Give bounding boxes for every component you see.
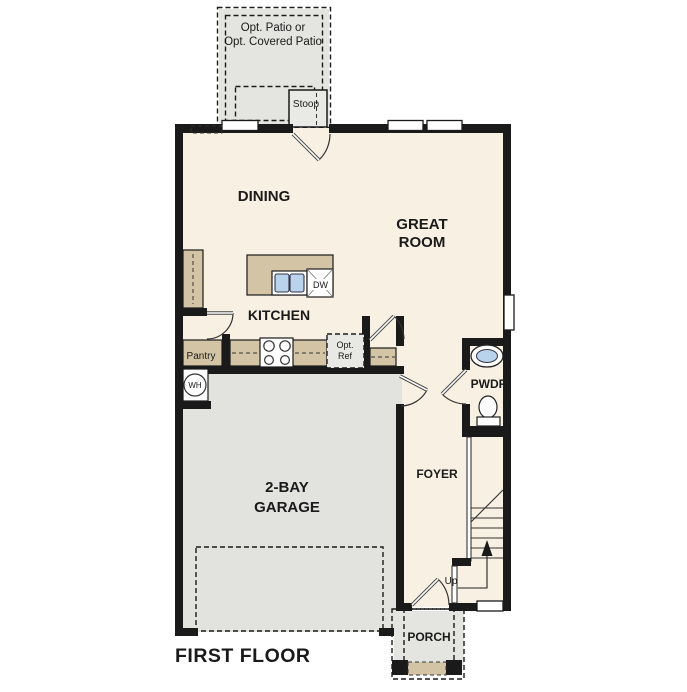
cooktop xyxy=(260,338,293,367)
water-heater: WH xyxy=(183,369,208,401)
kitchen-island: DW xyxy=(247,255,333,297)
page-title: FIRST FLOOR xyxy=(175,645,311,667)
foyer-label: FOYER xyxy=(416,467,458,481)
porch xyxy=(392,609,464,679)
window xyxy=(477,601,503,611)
optional-refrigerator: Opt. Ref xyxy=(327,334,364,368)
opt-ref-label-line2: Ref xyxy=(338,351,353,361)
stoop-label: Stoop xyxy=(293,99,320,110)
kitchen-label: KITCHEN xyxy=(248,307,310,323)
window xyxy=(222,121,258,131)
stoop: Stoop xyxy=(289,90,327,127)
window xyxy=(388,121,423,131)
garage-label-line1: 2-BAY xyxy=(265,479,309,496)
great-room-label-line1: GREAT xyxy=(396,216,447,233)
garage-label-line2: GARAGE xyxy=(254,499,320,516)
dishwasher: DW xyxy=(307,269,333,297)
up-label: Up xyxy=(445,576,458,587)
porch-label: PORCH xyxy=(407,630,450,644)
floor-plan-page: Opt. Patio or Opt. Covered Patio Stoop xyxy=(0,0,687,687)
floor-plan: Opt. Patio or Opt. Covered Patio Stoop xyxy=(0,0,687,687)
patio-label-line1: Opt. Patio or xyxy=(241,22,306,34)
dw-label: DW xyxy=(313,280,328,290)
great-room-label-line2: ROOM xyxy=(399,234,446,251)
window xyxy=(504,295,514,330)
pwdr-label: PWDR xyxy=(471,377,508,391)
window xyxy=(427,121,462,131)
porch-post xyxy=(392,660,408,675)
opt-ref-label-line1: Opt. xyxy=(336,340,353,350)
wh-label: WH xyxy=(188,381,202,390)
pantry-label: Pantry xyxy=(187,351,216,362)
porch-post xyxy=(446,660,462,675)
dining-label: DINING xyxy=(238,188,291,205)
patio-label-line2: Opt. Covered Patio xyxy=(224,36,322,48)
